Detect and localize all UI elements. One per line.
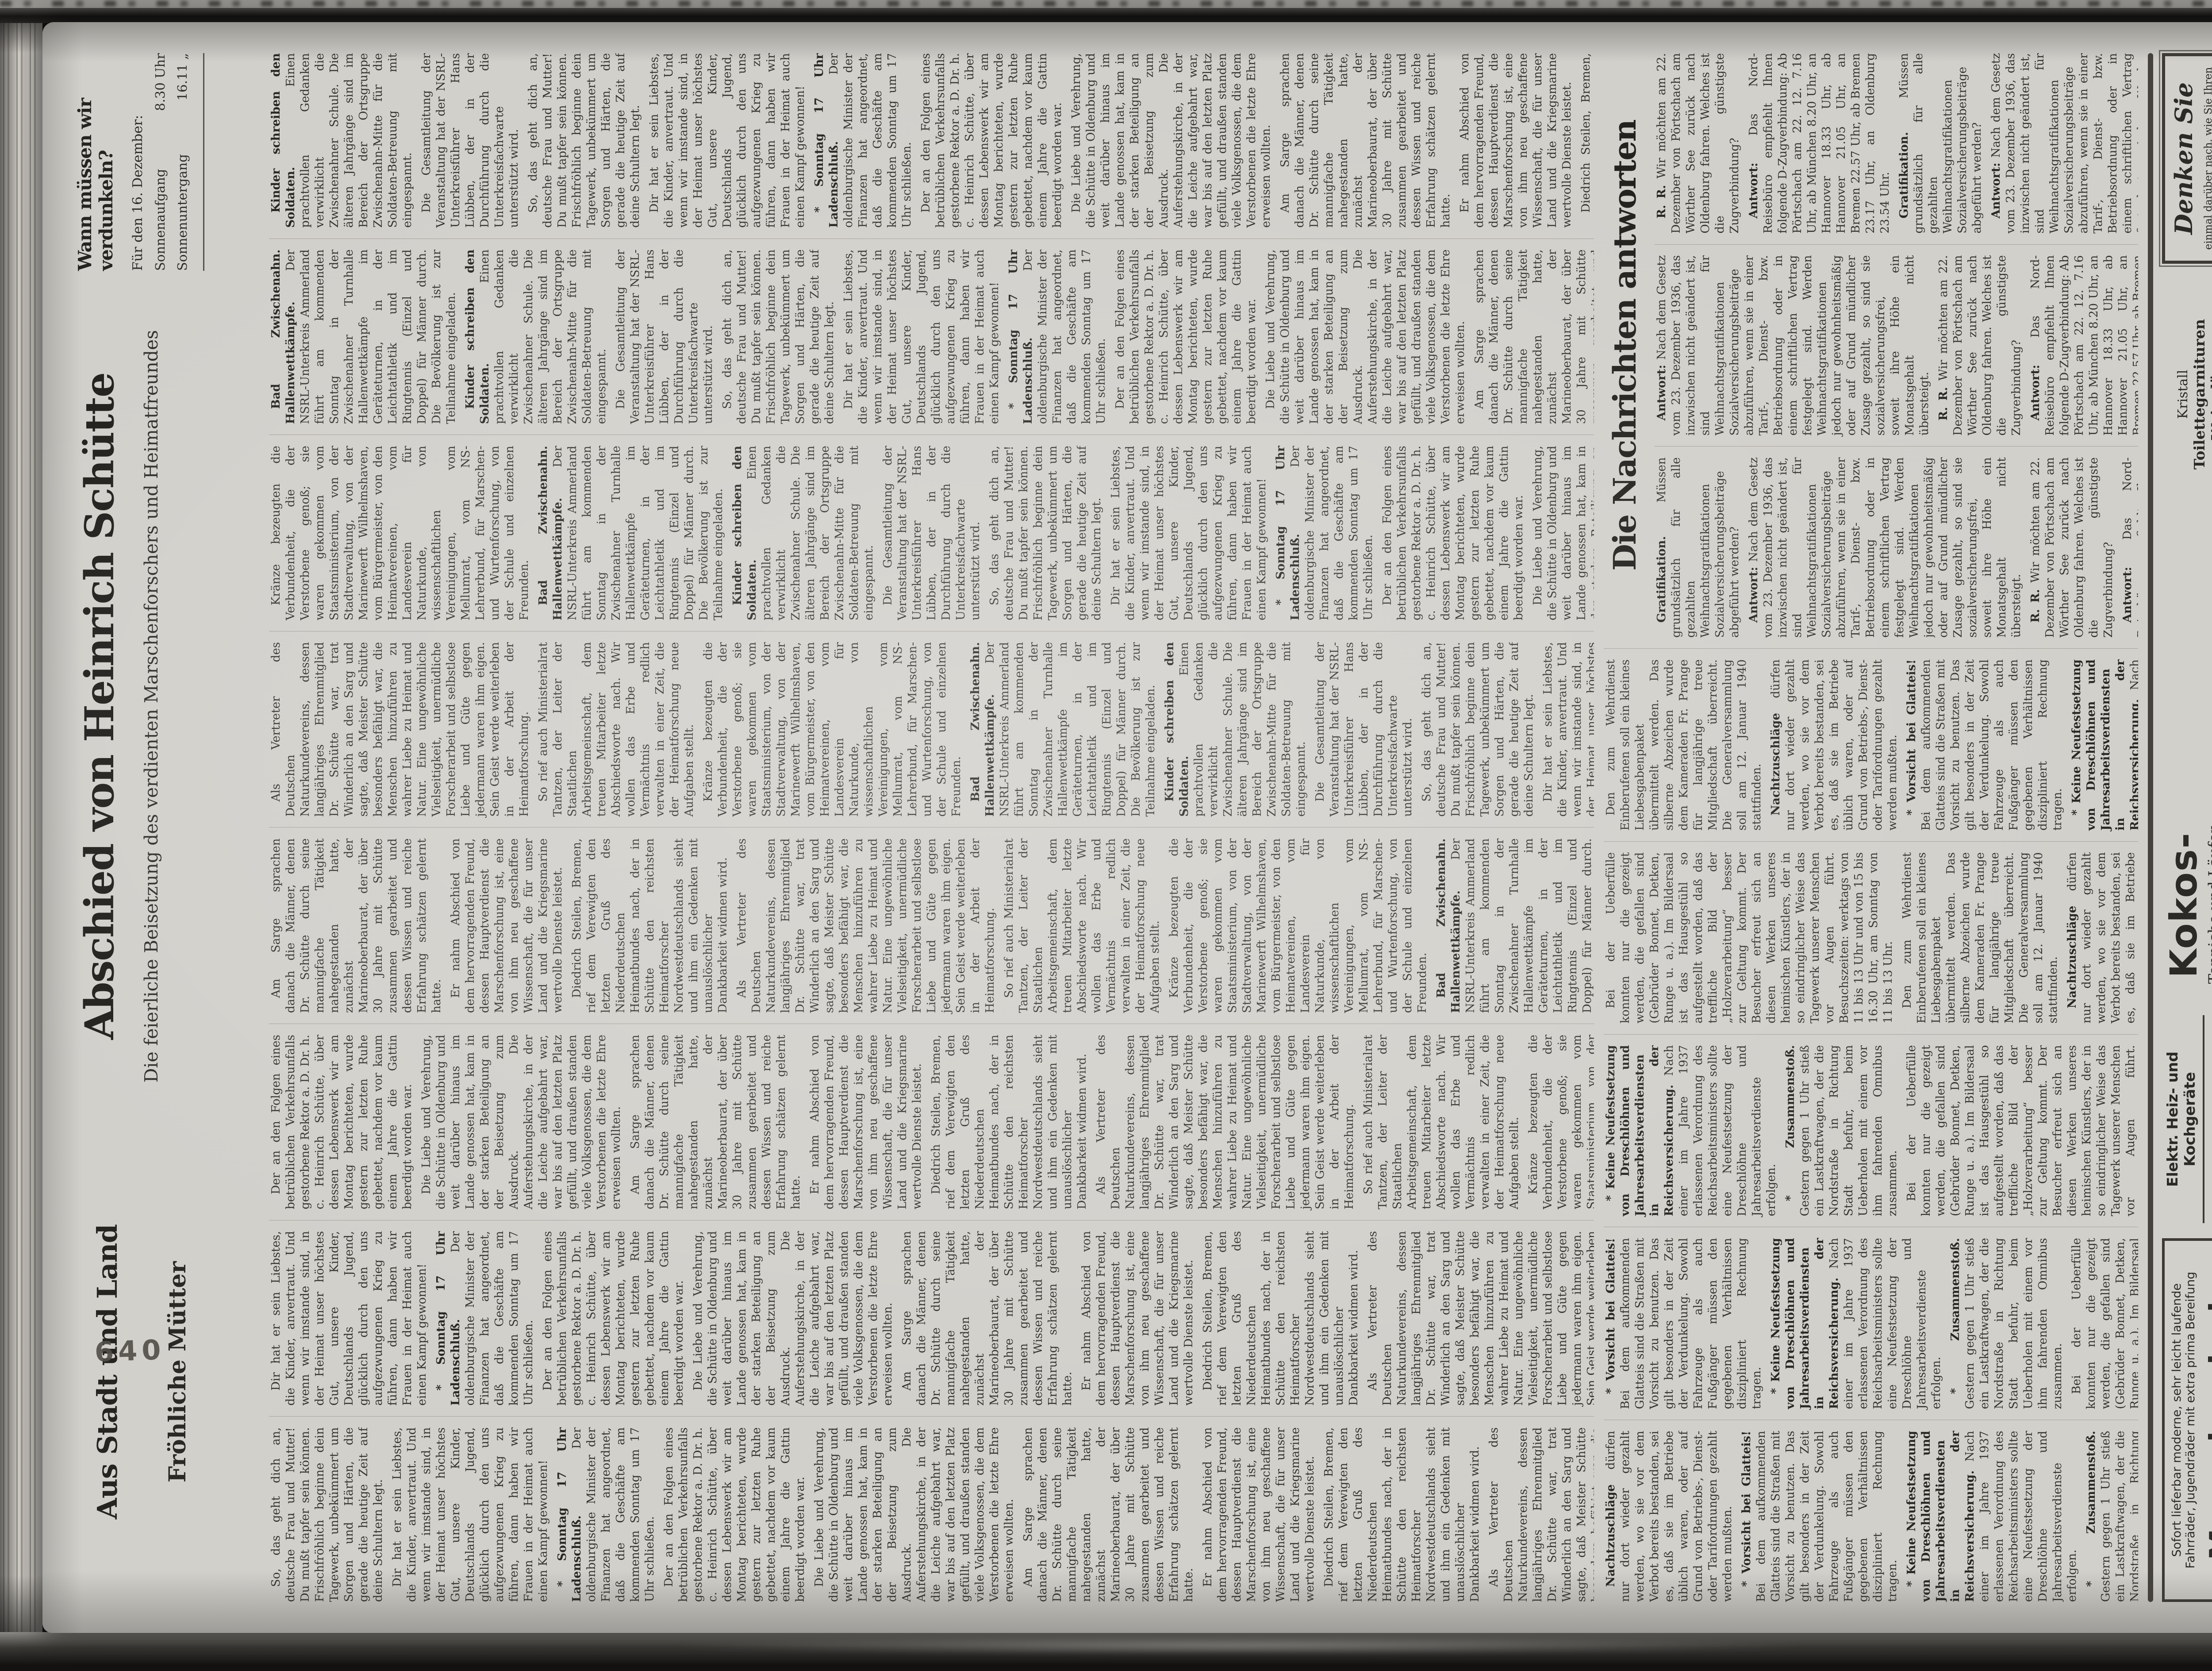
sunrise-row: Sonnenaufgang 8.30 Uhr bbox=[153, 53, 168, 271]
article-paragraph: * Sonntag 17 Uhr Ladenschluß. Der oldenb… bbox=[434, 1231, 536, 1406]
article-paragraph: So, das geht dich an, deutsche Frau und … bbox=[720, 250, 837, 424]
article-paragraph: Antwort: Das Nord-Reisebüro empfiehlt Ih… bbox=[2120, 457, 2138, 638]
body-column-2: Dir hat er sein Liebstes, die Kinder, an… bbox=[269, 1231, 1594, 1417]
ad-denken-body: einmal darüber nach, wie Sie Ihren Umsat… bbox=[2202, 63, 2212, 254]
ad-kokos-word: Kokos- bbox=[2162, 810, 2205, 1000]
blackout-title: Wann müssen wir verdunkeln? bbox=[74, 53, 117, 271]
ad-munderloh-line1: Sofort lieferbar moderne, sehr leicht la… bbox=[2170, 1250, 2184, 1590]
article-paragraph: * Sonntag 17 Uhr Ladenschluß. Der oldenb… bbox=[812, 53, 914, 228]
article-paragraph: Kinder schreiben den Soldaten. Einen pra… bbox=[730, 446, 876, 620]
paragraph-lead-in: * Sonntag 17 Uhr Ladenschluß. bbox=[1274, 446, 1302, 620]
article-paragraph: Am Sarge sprachen danach die Männer, den… bbox=[900, 1231, 1075, 1406]
ad-voss-line2: Toilettegarnituren bbox=[2191, 275, 2208, 513]
paragraph-lead-in: * Sonntag 17 Uhr Ladenschluß. bbox=[813, 53, 841, 228]
article-paragraph: Als Vertreter des Deutschen Naturkundeve… bbox=[735, 839, 998, 1013]
body-column-5: Als Vertreter des Deutschen Naturkundeve… bbox=[269, 642, 1594, 828]
article-paragraph: Der an den Folgen eines betrüblichen Ver… bbox=[541, 1231, 687, 1406]
article-paragraph: * Vorsicht bei Glatteis! Bei dem aufkomm… bbox=[1740, 1431, 1900, 1602]
article-paragraph: Als Vertreter des Deutschen Naturkundeve… bbox=[269, 642, 532, 817]
advertisement-strip: Sofort lieferbar moderne, sehr leicht la… bbox=[2162, 53, 2212, 1602]
qa-column-3: R. R. Wir möchten am 22. Dezember von Pö… bbox=[1655, 53, 2138, 245]
article-paragraph: * Keine Neufestsetzung von Dreschlöhnen … bbox=[2070, 659, 2138, 831]
ad-kokos-line2: Teppiche und Läufer bbox=[2205, 810, 2212, 1000]
paragraph-lead-in: R. R. bbox=[2029, 583, 2042, 623]
article-paragraph: * Vorsicht bei Glatteis! Bei dem aufkomm… bbox=[1604, 1238, 1764, 1409]
article-paragraph: Die Gesamtleitung der Veranstaltung hat … bbox=[419, 53, 522, 228]
briefs-column-1: Nachtzuschläge dürfen nur dort wieder ge… bbox=[1604, 1431, 2138, 1602]
paragraph-lead-in: Antwort: bbox=[1747, 562, 1760, 623]
ads-gap bbox=[2162, 528, 2212, 795]
article-paragraph: Nachtzuschläge dürfen nur dort wieder ge… bbox=[1769, 659, 1900, 831]
qa-column-area: Gratifikation. Müssen grundsätzlich für … bbox=[1655, 53, 2138, 638]
headline-abschied-schuette: Abschied von Heinrich Schütte bbox=[76, 290, 123, 1122]
obituary-header: Abschied von Heinrich Schütte Die feierl… bbox=[71, 290, 266, 1122]
article-paragraph: Am Sarge sprachen danach die Männer, den… bbox=[1021, 1427, 1196, 1602]
article-paragraph: So, das geht dich an, deutsche Frau und … bbox=[269, 1427, 386, 1602]
article-paragraph: Nachtzuschläge dürfen nur dort wieder ge… bbox=[1604, 1431, 1735, 1602]
column-rule bbox=[203, 53, 204, 271]
article-paragraph: R. R. Wir möchten am 22. Dezember von Pö… bbox=[2028, 457, 2116, 638]
body-column-4: Am Sarge sprachen danach die Männer, den… bbox=[269, 839, 1594, 1024]
article-paragraph: Am Sarge sprachen danach die Männer, den… bbox=[1472, 250, 1594, 424]
blurred-text-smear bbox=[0, 1, 2212, 6]
article-paragraph: * Zusammenstoß. Gestern gegen 1 Uhr stie… bbox=[1783, 1045, 1900, 1217]
article-paragraph: So, das geht dich an, deutsche Frau und … bbox=[987, 446, 1104, 620]
body-column-3: Der an den Folgen eines betrüblichen Ver… bbox=[269, 1035, 1594, 1221]
subhead-froehliche-muetter: Fröhliche Mütter bbox=[164, 1142, 191, 1602]
article-paragraph: Er nahm Abschied von dem hervorragenden … bbox=[1458, 53, 1575, 228]
article-paragraph: Kinder schreiben den Soldaten. Einen pra… bbox=[269, 53, 415, 228]
article-paragraph: Am Sarge sprachen danach die Männer, den… bbox=[1278, 53, 1453, 228]
ad-voss-line1: Kristall bbox=[2175, 275, 2191, 513]
article-paragraph: Er nahm Abschied von dem hervorragenden … bbox=[449, 839, 565, 1013]
article-paragraph: * Vorsicht bei Glatteis! Bei dem aufkomm… bbox=[1905, 659, 2065, 831]
ad-kokos-gellermann: Kokos- Teppiche und Läufer Aug. Gellerma… bbox=[2162, 810, 2212, 1000]
article-paragraph: Nachtzuschläge dürfen nur dort wieder ge… bbox=[2065, 852, 2138, 1024]
paragraph-lead-in: Kinder schreiben den Soldaten. bbox=[269, 53, 297, 228]
article-paragraph: Antwort: Das Nord-Reisebüro empfiehlt Ih… bbox=[2028, 255, 2138, 436]
blackout-times-box: Wann müssen wir verdunkeln? Für den 16. … bbox=[71, 53, 266, 271]
ads-separator-rule bbox=[2148, 53, 2153, 1602]
paragraph-lead-in: Antwort: bbox=[1747, 135, 1760, 218]
ad-joh-voss: Kristall Toilettegarnituren Weingläser J… bbox=[2162, 275, 2212, 513]
newspaper-page: Aus Stadt und Land Fröhliche Mütter Absc… bbox=[42, 22, 2212, 1633]
ad-munderloh-line2: Fahrräder, Jugendräder mit extra prima B… bbox=[2184, 1250, 2197, 1590]
article-paragraph: So rief auch Ministerialrat Tantzen, der… bbox=[1002, 839, 1163, 1013]
paragraph-lead-in: Gratifikation. bbox=[1655, 503, 1668, 623]
obituary-subtitle: Die feierliche Beisetzung des verdienten… bbox=[141, 290, 162, 1122]
paragraph-lead-in: Antwort: bbox=[2121, 540, 2134, 623]
page-top-band: Aus Stadt und Land Fröhliche Mütter Absc… bbox=[71, 53, 266, 1602]
article-paragraph: Kränze bezeugten die Verbundenheit, die … bbox=[701, 642, 964, 817]
article-paragraph: Am Sarge sprachen danach die Männer, den… bbox=[269, 839, 444, 1013]
article-paragraph: Diedrich Steilen, Bremen, rief dem Verew… bbox=[570, 839, 730, 1013]
article-paragraph: Der an den Folgen eines betrüblichen Ver… bbox=[919, 53, 1065, 228]
section-header-local: Aus Stadt und Land Fröhliche Mütter bbox=[71, 1142, 266, 1602]
article-paragraph: So rief auch Ministerialrat Tantzen, der… bbox=[1361, 1035, 1522, 1209]
paragraph-lead-in: R. R. bbox=[1655, 179, 1668, 219]
sunset-row: Sonnenuntergang 16.11 „ bbox=[175, 53, 190, 271]
article-paragraph: Als Vertreter des Deutschen Naturkundeve… bbox=[1487, 1427, 1594, 1602]
article-paragraph: Am Sarge sprachen danach die Männer, den… bbox=[628, 1035, 803, 1209]
paragraph-lead-in: Antwort: bbox=[2029, 338, 2042, 420]
paragraph-lead-in: Bad Zwischenahn. Hallenwettkämpfe. bbox=[269, 250, 297, 424]
headline-nachrichten-antworten: Die Nachrichten antworten bbox=[1606, 53, 1643, 638]
article-paragraph: Die Liebe und Verehrung, die Schütte in … bbox=[691, 1231, 895, 1406]
article-paragraph: Kränze bezeugten die Verbundenheit, die … bbox=[269, 446, 532, 620]
article-paragraph: Er nahm Abschied von dem hervorragenden … bbox=[808, 1035, 925, 1209]
article-paragraph: R. R. Wir möchten am 22. Dezember von Pö… bbox=[1936, 255, 2024, 436]
article-paragraph: * Keine Neufestsetzung von Dreschlöhnen … bbox=[1769, 1238, 1944, 1409]
article-paragraph: Diedrich Steilen, Bremen, rief dem Verew… bbox=[1201, 1231, 1361, 1406]
body-column-7: Bad Zwischenahn. Hallenwettkämpfe. Der N… bbox=[269, 250, 1594, 435]
article-paragraph: Bei der Ueberfülle konnten nur die gezei… bbox=[1604, 852, 1896, 1024]
paragraph-lead-in: * Sonntag 17 Uhr Ladenschluß. bbox=[434, 1231, 462, 1406]
article-paragraph: Dir hat er sein Liebstes, die Kinder, an… bbox=[647, 53, 808, 228]
ads-corner-group: Kristall Toilettegarnituren Weingläser J… bbox=[2162, 53, 2212, 513]
article-paragraph: So, das geht dich an, deutsche Frau und … bbox=[526, 53, 643, 228]
article-paragraph: Den zum Wehrdienst Einberufenen soll ein… bbox=[1604, 659, 1764, 831]
ad-voss-line3: Weingläser bbox=[2208, 275, 2212, 513]
qa-column-1: Gratifikation. Müssen grundsätzlich für … bbox=[1655, 457, 2138, 638]
paragraph-lead-in: Bad Zwischenahn. Hallenwettkämpfe. bbox=[537, 446, 565, 620]
article-paragraph: * Zusammenstoß. Gestern gegen 1 Uhr stie… bbox=[2084, 1431, 2138, 1602]
briefs-column-2: * Vorsicht bei Glatteis! Bei dem aufkomm… bbox=[1604, 1238, 2138, 1420]
article-paragraph: Kinder schreiben den Soldaten. Einen pra… bbox=[1163, 642, 1309, 817]
sunset-label: Sonnenuntergang bbox=[175, 154, 190, 271]
paragraph-lead-in: * Keine Neufestsetzung von Dreschlöhnen … bbox=[2070, 659, 2138, 831]
briefs-column-4: Bei der Ueberfülle konnten nur die gezei… bbox=[1604, 852, 2138, 1035]
article-paragraph: Bad Zwischenahn. Hallenwettkämpfe. Der N… bbox=[968, 642, 1158, 817]
article-paragraph: Die Gesamtleitung der Veranstaltung hat … bbox=[881, 446, 983, 620]
article-paragraph: Antwort: Nach dem Gesetz vom 23. Dezembe… bbox=[1989, 53, 2138, 234]
blackout-dateline: Für den 16. Dezember: bbox=[130, 53, 146, 271]
paragraph-lead-in: * Sonntag 17 Uhr Ladenschluß. bbox=[1007, 250, 1035, 424]
paragraph-lead-in: Antwort: bbox=[1655, 360, 1668, 420]
ad-denken-title: Denken Sie bbox=[2170, 63, 2198, 254]
paragraph-lead-in: * Vorsicht bei Glatteis! bbox=[1740, 1431, 1753, 1587]
article-paragraph: Bad Zwischenahn. Hallenwettkämpfe. Der N… bbox=[536, 446, 726, 620]
paragraph-lead-in: Bad Zwischenahn. Hallenwettkämpfe. bbox=[969, 642, 997, 817]
paragraph-lead-in: Kinder schreiben den Soldaten. bbox=[464, 250, 492, 424]
article-paragraph: Diedrich Steilen, Bremen, rief dem Verew… bbox=[929, 1035, 1090, 1209]
article-paragraph: Die Liebe und Verehrung, die Schütte in … bbox=[1531, 446, 1594, 620]
article-paragraph: Die Gesamtleitung der Veranstaltung hat … bbox=[614, 250, 716, 424]
paragraph-lead-in: * Zusammenstoß. bbox=[2085, 1431, 2098, 1587]
paragraph-lead-in: Nachtzuschläge bbox=[1769, 698, 1782, 816]
paragraph-lead-in: Nachtzuschläge bbox=[1604, 1470, 1617, 1587]
book-page-stack-edge bbox=[0, 0, 42, 1671]
body-column-8: Kinder schreiben den Soldaten. Einen pra… bbox=[269, 53, 1594, 239]
article-paragraph: * Keine Neufestsetzung von Dreschlöhnen … bbox=[1604, 1045, 1779, 1217]
paragraph-lead-in: Antwort: bbox=[1989, 158, 2003, 218]
article-paragraph: Dir hat er sein Liebstes, die Kinder, an… bbox=[841, 250, 1002, 424]
paragraph-lead-in: * Zusammenstoß. bbox=[1949, 1238, 1962, 1394]
paragraph-lead-in: * Zusammenstoß. bbox=[1784, 1045, 1797, 1201]
article-paragraph: Der an den Folgen eines betrüblichen Ver… bbox=[662, 1427, 808, 1602]
article-paragraph: Die Liebe und Verehrung, die Schütte in … bbox=[812, 1427, 1017, 1602]
article-paragraph: Die Gesamtleitung der Veranstaltung hat … bbox=[1313, 642, 1415, 817]
article-paragraph: Der an den Folgen eines betrüblichen Ver… bbox=[1380, 446, 1526, 620]
article-paragraph: Bei der Ueberfülle konnten nur die gezei… bbox=[1905, 1045, 2138, 1217]
page-edge-highlight bbox=[664, 1636, 1814, 1654]
newspaper-content-rotated: Aus Stadt und Land Fröhliche Mütter Absc… bbox=[42, 22, 2212, 1633]
paragraph-lead-in: * Vorsicht bei Glatteis! bbox=[1604, 1238, 1617, 1394]
bottom-page-edge-shadow bbox=[0, 1632, 2212, 1671]
article-paragraph: Antwort: Das Nord-Reisebüro empfiehlt Ih… bbox=[1747, 53, 1893, 234]
article-paragraph: * Sonntag 17 Uhr Ladenschluß. Der oldenb… bbox=[555, 1427, 657, 1602]
article-paragraph: Der an den Folgen eines betrüblichen Ver… bbox=[269, 1035, 415, 1209]
article-paragraph: * Keine Neufestsetzung von Dreschlöhnen … bbox=[1905, 1431, 2080, 1602]
briefs-area: Nachtzuschläge dürfen nur dort wieder ge… bbox=[1604, 659, 2138, 1602]
briefs-column-3: * Keine Neufestsetzung von Dreschlöhnen … bbox=[1604, 1045, 2138, 1228]
article-paragraph: Die Liebe und Verehrung, die Schütte in … bbox=[419, 1035, 624, 1209]
article-paragraph: Gratifikation. Müssen grundsätzlich für … bbox=[1655, 457, 1742, 638]
article-paragraph: R. R. Wir möchten am 22. Dezember von Pö… bbox=[1655, 53, 1742, 234]
article-paragraph: Als Vertreter des Deutschen Naturkundeve… bbox=[1366, 1231, 1594, 1406]
article-paragraph: Gratifikation. Müssen grundsätzlich für … bbox=[1897, 53, 1985, 234]
paragraph-lead-in: * Sonntag 17 Uhr Ladenschluß. bbox=[556, 1427, 584, 1602]
ad-stoever-line1: Elektr. Heiz- und Kochgeräte bbox=[2164, 1015, 2204, 1223]
paragraph-lead-in: Bad Zwischenahn. Hallenwettkämpfe. bbox=[1435, 839, 1463, 1013]
body-column-1: So, das geht dich an, deutsche Frau und … bbox=[269, 1427, 1594, 1602]
body-column-6: Kränze bezeugten die Verbundenheit, die … bbox=[269, 446, 1594, 631]
article-paragraph: Die Liebe und Verehrung, die Schütte in … bbox=[1069, 53, 1274, 228]
article-paragraph: Als Vertreter des Deutschen Naturkundeve… bbox=[1094, 1035, 1357, 1209]
qa-column-2: Antwort: Nach dem Gesetz vom 23. Dezembe… bbox=[1655, 255, 2138, 447]
headline-aus-stadt-und-land: Aus Stadt und Land bbox=[91, 1142, 123, 1602]
article-paragraph: Er nahm Abschied von dem hervorragenden … bbox=[1201, 1427, 1317, 1602]
article-paragraph: Er nahm Abschied von dem hervorragenden … bbox=[1079, 1231, 1196, 1406]
article-paragraph: Die Liebe und Verehrung, die Schütte in … bbox=[1263, 250, 1468, 424]
paragraph-lead-in: Gratifikation. bbox=[1897, 98, 1911, 218]
book-gutter-shadow bbox=[0, 8, 2212, 23]
article-paragraph: Bad Zwischenahn. Hallenwettkämpfe. Der N… bbox=[1434, 839, 1594, 1013]
sunset-value: 16.11 „ bbox=[175, 53, 190, 100]
paragraph-lead-in: * Keine Neufestsetzung von Dreschlöhnen … bbox=[1604, 1045, 1676, 1217]
ad-munderloh: Sofort lieferbar moderne, sehr leicht la… bbox=[2162, 1238, 2212, 1602]
article-paragraph: Kinder schreiben den Soldaten. Einen pra… bbox=[463, 250, 609, 424]
article-paragraph: Den zum Wehrdienst Einberufenen soll ein… bbox=[1900, 852, 2061, 1024]
folio-number-stamp: 640 bbox=[94, 1333, 166, 1368]
paragraph-lead-in: * Keine Neufestsetzung von Dreschlöhnen … bbox=[1769, 1238, 1841, 1409]
main-column-area: So, das geht dich an, deutsche Frau und … bbox=[269, 53, 1594, 1602]
article-paragraph: So rief auch Ministerialrat Tantzen, der… bbox=[536, 642, 697, 817]
article-paragraph: * Sonntag 17 Uhr Ladenschluß. Der oldenb… bbox=[1274, 446, 1376, 620]
paragraph-lead-in: R. R. bbox=[1937, 381, 1950, 420]
article-paragraph: So, das geht dich an, deutsche Frau und … bbox=[1420, 642, 1536, 817]
article-paragraph: Bad Zwischenahn. Hallenwettkämpfe. Der N… bbox=[269, 250, 459, 424]
paragraph-lead-in: * Keine Neufestsetzung von Dreschlöhnen … bbox=[1905, 1431, 1977, 1602]
article-paragraph: * Sonntag 17 Uhr Ladenschluß. Der oldenb… bbox=[1006, 250, 1109, 424]
article-paragraph: Kränze bezeugten die Verbundenheit, die … bbox=[1167, 839, 1430, 1013]
paragraph-lead-in: Kinder schreiben den Soldaten. bbox=[1163, 642, 1191, 817]
adjacent-page-edge bbox=[0, 0, 2212, 8]
article-paragraph: Antwort: Nach dem Gesetz vom 23. Dezembe… bbox=[1747, 457, 2024, 638]
ad-fritz-stoever: Elektr. Heiz- und Kochgeräte Gasherde Fr… bbox=[2162, 1015, 2212, 1223]
briefs-column-5: Den zum Wehrdienst Einberufenen soll ein… bbox=[1604, 659, 2138, 842]
paragraph-lead-in: * Vorsicht bei Glatteis! bbox=[1905, 659, 1918, 816]
ad-munderloh-name: Munderloh bbox=[2203, 1250, 2212, 1590]
article-paragraph: Dir hat er sein Liebstes, die Kinder, an… bbox=[1541, 642, 1594, 817]
article-paragraph: Der an den Folgen eines betrüblichen Ver… bbox=[1113, 250, 1259, 424]
qa-section: Die Nachrichten antworten Gratifikation.… bbox=[1604, 53, 2138, 649]
ad-denken-sie: Denken Sie einmal darüber nach, wie Sie … bbox=[2162, 53, 2212, 264]
sunrise-value: 8.30 Uhr bbox=[153, 53, 168, 111]
article-paragraph: Bei der Ueberfülle konnten nur die gezei… bbox=[2070, 1238, 2138, 1409]
paragraph-lead-in: Nachtzuschläge bbox=[2066, 891, 2079, 1008]
article-paragraph: Dir hat er sein Liebstes, die Kinder, an… bbox=[390, 1427, 551, 1602]
article-paragraph: Dir hat er sein Liebstes, die Kinder, an… bbox=[1109, 446, 1269, 620]
article-paragraph: Dir hat er sein Liebstes, die Kinder, an… bbox=[269, 1231, 430, 1406]
article-paragraph: Diedrich Steilen, Bremen, rief dem Verew… bbox=[1322, 1427, 1482, 1602]
article-paragraph: Kränze bezeugten die Verbundenheit, die … bbox=[1526, 1035, 1594, 1209]
lower-section: Nachtzuschläge dürfen nur dort wieder ge… bbox=[1604, 53, 2138, 1602]
article-paragraph: Antwort: Nach dem Gesetz vom 23. Dezembe… bbox=[1655, 255, 1932, 436]
paragraph-lead-in: Kinder schreiben den Soldaten. bbox=[731, 446, 759, 620]
article-paragraph: * Zusammenstoß. Gestern gegen 1 Uhr stie… bbox=[1948, 1238, 2065, 1409]
sunrise-label: Sonnenaufgang bbox=[153, 169, 168, 271]
article-paragraph: Diedrich Steilen, Bremen, rief dem Verew… bbox=[1579, 53, 1594, 228]
